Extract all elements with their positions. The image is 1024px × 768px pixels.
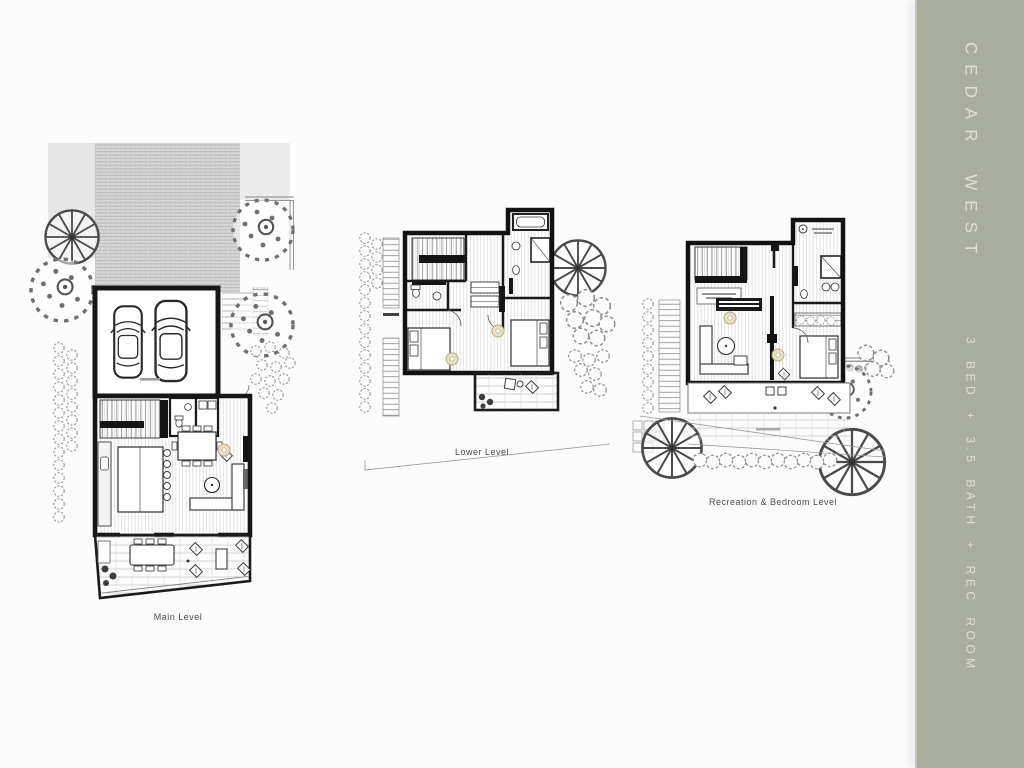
lower-level-label: Lower Level (419, 447, 545, 457)
sidebar-title: CEDAR WEST (961, 42, 981, 263)
main-level-label: Main Level (120, 612, 236, 622)
hedge-row-icon (693, 453, 837, 469)
floorplan-lower-level (353, 198, 617, 480)
shrub-row-icon (643, 299, 653, 413)
lower-floor (405, 210, 552, 373)
sidebar: CEDAR WEST 3 BED + 3.5 BATH + REC ROOM (915, 0, 1024, 768)
deck-lower (475, 373, 558, 410)
deck-main (95, 535, 250, 598)
floorplan-main-level (28, 133, 312, 633)
floorplan-rec-level (628, 208, 898, 508)
shrub-row-icon (360, 233, 382, 412)
floorplan-main-level-drawing (28, 133, 312, 633)
rec-level-label: Recreation & Bedroom Level (688, 497, 858, 507)
tree-icon (550, 240, 614, 396)
rec-floor (688, 220, 843, 383)
floorplan-sheet: Main Level Lower Level Recreation & Bedr… (0, 0, 1024, 768)
floorplan-lower-level-drawing (353, 198, 617, 480)
sidebar-subtitle: 3 BED + 3.5 BATH + REC ROOM (964, 337, 978, 673)
main-floor-interior (95, 396, 250, 538)
floorplan-rec-level-drawing (628, 208, 898, 508)
